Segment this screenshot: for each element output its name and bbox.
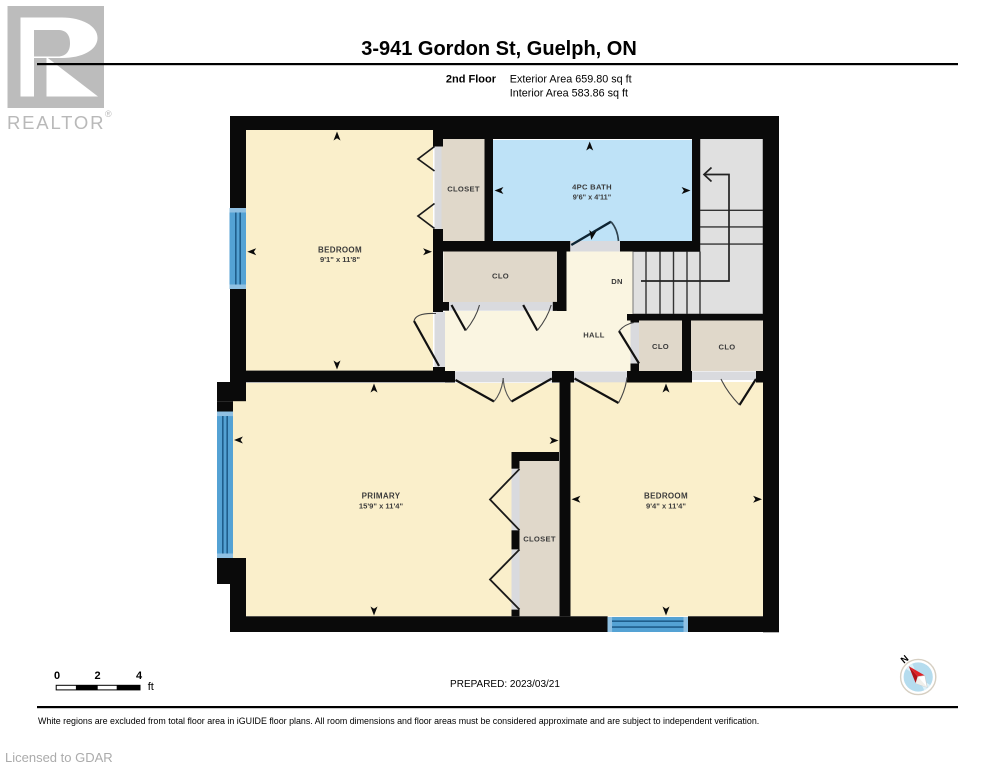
svg-text:Licensed to GDAR: Licensed to GDAR [5, 750, 113, 765]
svg-text:®: ® [105, 109, 112, 119]
svg-text:CLO: CLO [652, 342, 669, 351]
svg-text:4: 4 [136, 670, 143, 682]
svg-text:CLO: CLO [719, 343, 736, 352]
svg-text:CLO: CLO [492, 272, 509, 281]
svg-text:9'6" x 4'11": 9'6" x 4'11" [573, 193, 611, 202]
svg-text:REALTOR: REALTOR [7, 112, 105, 133]
svg-text:ft: ft [148, 681, 154, 693]
svg-text:CLOSET: CLOSET [523, 535, 556, 544]
svg-text:BEDROOM: BEDROOM [644, 492, 688, 501]
svg-text:3-941 Gordon St, Guelph, ON: 3-941 Gordon St, Guelph, ON [361, 38, 637, 60]
svg-text:CLOSET: CLOSET [447, 185, 480, 194]
svg-text:Exterior Area 659.80 sq ft: Exterior Area 659.80 sq ft [510, 74, 632, 86]
svg-text:White regions are excluded fro: White regions are excluded from total fl… [38, 716, 759, 726]
svg-text:4PC BATH: 4PC BATH [572, 183, 612, 192]
svg-text:9'4" x 11'4": 9'4" x 11'4" [646, 502, 686, 511]
svg-text:BEDROOM: BEDROOM [318, 246, 362, 255]
svg-text:HALL: HALL [583, 331, 605, 340]
svg-text:Interior Area 583.86 sq ft: Interior Area 583.86 sq ft [510, 88, 628, 100]
svg-text:PREPARED: 2023/03/21: PREPARED: 2023/03/21 [450, 679, 560, 690]
svg-text:2: 2 [95, 670, 101, 682]
svg-text:9'1" x 11'8": 9'1" x 11'8" [320, 255, 360, 264]
svg-text:2nd Floor: 2nd Floor [446, 74, 497, 86]
svg-text:15'9" x 11'4": 15'9" x 11'4" [359, 502, 404, 511]
svg-text:0: 0 [54, 670, 60, 682]
svg-text:PRIMARY: PRIMARY [362, 492, 401, 501]
svg-text:DN: DN [611, 277, 623, 286]
